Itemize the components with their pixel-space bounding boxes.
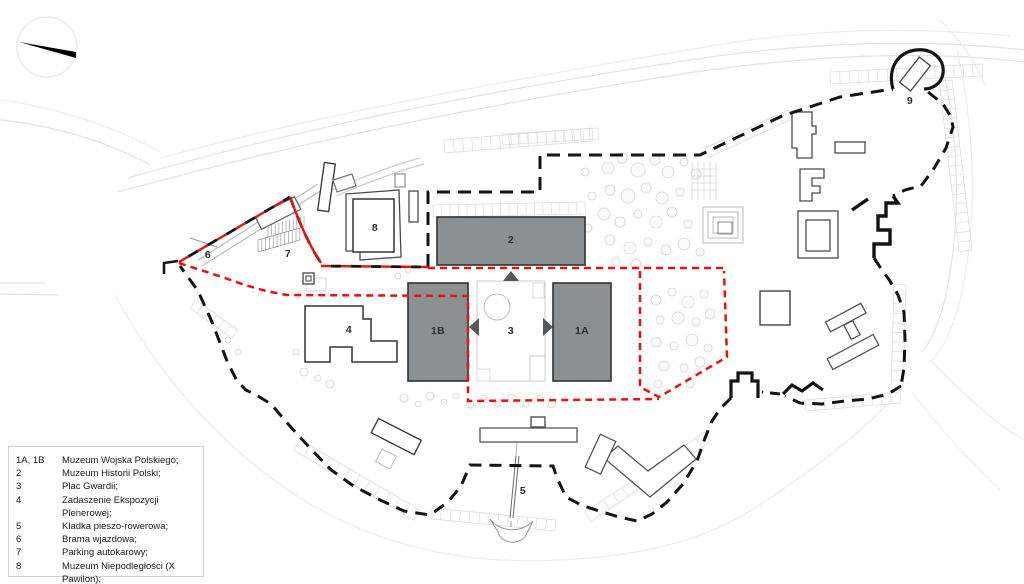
plan-label-5: 5 bbox=[520, 485, 526, 497]
legend: 1A, 1BMuzeum Wojska Polskiego; 2Muzeum H… bbox=[8, 446, 204, 577]
legend-label: Muzeum Historii Polski; bbox=[62, 467, 199, 480]
south-long-building bbox=[480, 428, 577, 442]
site-plan: 2 1B 1A 3 4 5 6 7 8 9 1A, 1BMuzeum Wojsk… bbox=[0, 0, 1024, 584]
legend-label: Parking autokarowy; bbox=[62, 546, 199, 559]
legend-key: 1A, 1B bbox=[16, 454, 62, 467]
outlined-buildings bbox=[255, 57, 930, 497]
legend-key: 3 bbox=[16, 480, 62, 493]
legend-row: 1A, 1BMuzeum Wojska Polskiego; bbox=[16, 454, 199, 467]
legend-label: Muzeum Niepodległości (X Pawilon); bbox=[62, 560, 199, 584]
arrow-right-icon bbox=[543, 318, 553, 336]
ne-bastion-building bbox=[900, 57, 931, 91]
plan-label-1b: 1B bbox=[431, 325, 445, 337]
legend-key: 6 bbox=[16, 533, 62, 546]
north-arrow-icon bbox=[17, 17, 77, 77]
plan-label-6: 6 bbox=[205, 249, 211, 261]
legend-label: Zadaszenie Ekspozycji Plenerowej; bbox=[62, 494, 199, 520]
legend-label: Muzeum Wojska Polskiego; bbox=[62, 454, 199, 467]
legend-label: Kładka pieszo-rowerowa; bbox=[62, 520, 199, 533]
plan-label-2: 2 bbox=[508, 234, 514, 246]
plan-label-9: 9 bbox=[907, 95, 913, 107]
legend-key: 5 bbox=[16, 520, 62, 533]
wall-fragment-crown bbox=[731, 373, 758, 398]
red-loop-east bbox=[640, 271, 727, 397]
east-building-1 bbox=[792, 112, 816, 158]
se-bent-building bbox=[604, 445, 696, 497]
legend-row: 6Brama wjazdowa; bbox=[16, 533, 199, 546]
plan-label-4: 4 bbox=[346, 324, 352, 336]
legend-label: Brama wjazdowa; bbox=[62, 533, 199, 546]
legend-row: 3Plac Gwardii; bbox=[16, 480, 199, 493]
plan-label-8: 8 bbox=[372, 222, 378, 234]
gate-tower bbox=[318, 163, 336, 212]
legend-row: 7Parking autokarowy; bbox=[16, 546, 199, 559]
footbridge bbox=[490, 456, 533, 542]
legend-key: 4 bbox=[16, 494, 62, 520]
legend-row: 8Muzeum Niepodległości (X Pawilon); bbox=[16, 560, 199, 584]
legend-key: 2 bbox=[16, 467, 62, 480]
plan-label-7: 7 bbox=[285, 248, 291, 260]
wall-fragment-east bbox=[852, 196, 898, 258]
legend-key: 8 bbox=[16, 560, 62, 584]
legend-key: 7 bbox=[16, 546, 62, 559]
wall-fragment-se bbox=[783, 383, 823, 394]
legend-row: 5Kładka pieszo-rowerowa; bbox=[16, 520, 199, 533]
legend-row: 4Zadaszenie Ekspozycji Plenerowej; bbox=[16, 494, 199, 520]
legend-label: Plac Gwardii; bbox=[62, 480, 199, 493]
arrow-up-icon bbox=[503, 271, 519, 281]
arrow-left-icon bbox=[469, 318, 479, 336]
plan-label-3: 3 bbox=[508, 325, 514, 337]
sw-angled-building bbox=[371, 419, 421, 455]
plan-label-1a: 1A bbox=[575, 325, 589, 337]
legend-row: 2Muzeum Historii Polski; bbox=[16, 467, 199, 480]
east-building-c bbox=[800, 169, 824, 201]
